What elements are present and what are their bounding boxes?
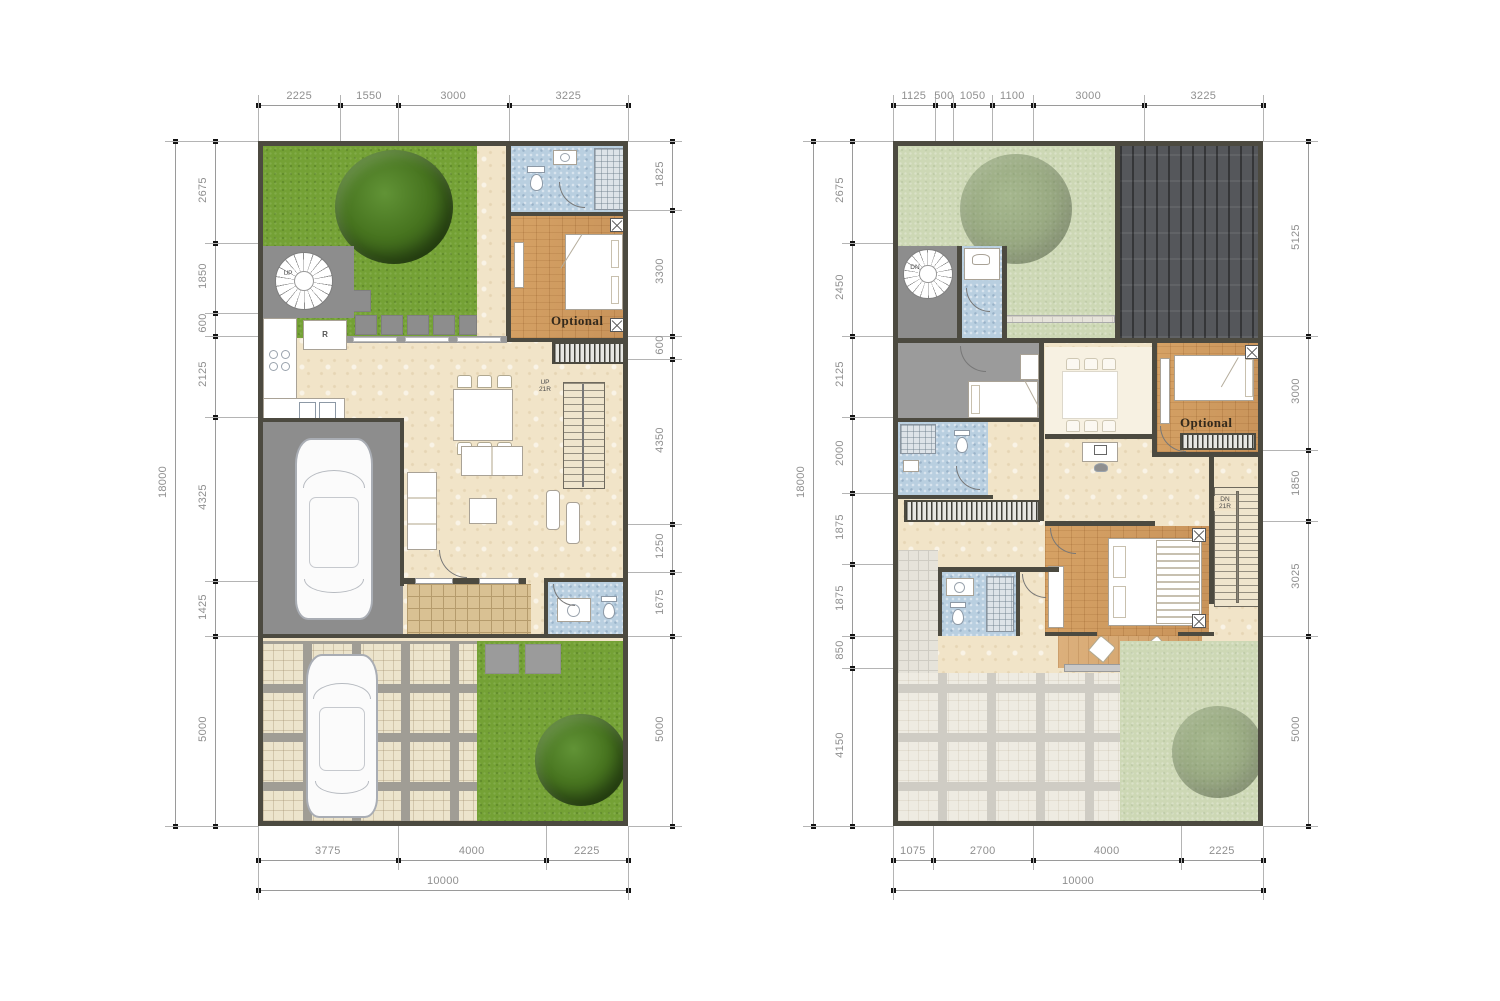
dim-witness-line [1263,826,1318,827]
dim-witness-line [205,336,258,337]
kitchen-sink [299,402,316,419]
stepping-stone [355,315,377,335]
dim-tick [670,570,675,575]
optional-room-label: Optional [551,313,603,329]
dim-tick [670,334,675,339]
dim-witness-line [842,243,893,244]
window [415,578,453,584]
desk-monitor [1094,445,1107,455]
dim-witness-line [628,826,629,900]
stair-label: DN 21R [1214,496,1236,511]
dim-tick [626,888,631,893]
dim-witness-line [205,636,258,637]
wall [510,338,623,342]
dim-witness-line [628,336,682,337]
dim-tick [891,888,896,893]
dining-chair [457,375,472,388]
bed-pillow [1113,586,1126,618]
dim-label: 600 [197,293,209,353]
dim-label: 2675 [197,160,209,220]
dim-witness-line [628,826,629,870]
dim-tick [850,139,855,144]
wall [898,495,993,499]
shower-b [900,424,936,454]
ac-unit [1245,345,1258,359]
dim-tick [670,139,675,144]
spiral-staircase [275,252,333,310]
dim-witness-line [842,668,893,669]
dim-witness-line [628,210,682,211]
sofa [407,472,437,550]
dim-witness-line [340,95,341,141]
dim-label: 1675 [654,572,666,632]
dim-witness-line [803,141,893,142]
dim-witness-line [842,564,893,565]
dim-label: 3775 [298,845,358,857]
dining-chair-below [1084,420,1098,432]
dim-witness-line [893,826,894,870]
car-windshield [313,683,370,699]
toilet-tank [527,166,545,173]
stepping-stone [407,315,429,335]
dim-witness-line [398,95,399,141]
toilet [956,437,968,453]
dim-label: 1875 [834,497,846,557]
dim-witness-line [165,141,258,142]
refrigerator-label: R [322,330,328,339]
dim-tick [990,103,995,108]
wall [1115,146,1120,338]
dim-witness-line [628,572,682,573]
dim-tick [507,103,512,108]
step-pad [525,644,561,674]
dim-tick [811,824,816,829]
dim-label: 1100 [982,90,1042,102]
stepping-stone [381,315,403,335]
dim-label: 5000 [654,699,666,759]
bed-pillow [971,385,980,414]
dim-witness-line [933,826,934,870]
car-rear-window [304,579,363,593]
staircase-up [563,382,605,489]
tv-console [546,490,560,530]
dim-witness-line [205,141,258,142]
dim-line [1308,141,1309,826]
dim-label: 4000 [1077,845,1137,857]
dim-label: 3025 [1290,546,1302,606]
wall [1152,343,1157,457]
stepping-stone [459,315,477,335]
wall [544,578,623,582]
wall [938,567,942,636]
wall [1039,343,1044,521]
dim-witness-line [1263,336,1318,337]
toilet-tank [950,602,966,608]
dim-witness-line [628,95,629,141]
dim-label: 3300 [654,241,666,301]
dim-label: 10000 [1048,875,1108,887]
dim-label: 4150 [834,715,846,775]
dining-table-below [1062,371,1118,419]
dim-witness-line [953,95,954,141]
dim-tick [1306,824,1311,829]
planter-ledge [1001,315,1115,323]
dim-tick [338,103,343,108]
dim-tick [396,103,401,108]
dim-tick [891,103,896,108]
ac-ledge [552,342,623,364]
staircase-rail [582,384,584,487]
door-panel [457,337,501,342]
ac-unit [1192,614,1206,628]
dim-witness-line [628,524,682,525]
dim-tick [1306,634,1311,639]
door-panel [405,337,449,342]
side-terrace [898,550,938,673]
dim-tick [626,103,631,108]
dim-label: 3000 [1058,90,1118,102]
dim-tick [951,103,956,108]
dim-tick [1306,334,1311,339]
wall [957,246,962,338]
wardrobe [1020,354,1039,380]
dim-tick [850,334,855,339]
dim-label: 4350 [654,410,666,470]
dim-witness-line [842,417,893,418]
dim-witness-line [1263,450,1318,451]
dim-witness-line [842,826,893,827]
dim-tick [213,139,218,144]
dim-tick [850,634,855,639]
dim-label: 2700 [953,845,1013,857]
dim-witness-line [165,826,258,827]
stair-risers: 21R [539,386,551,393]
dim-line [258,890,628,891]
basin [972,254,990,265]
dim-label: 3000 [1290,361,1302,421]
wall [1045,434,1157,439]
dim-tick [1179,858,1184,863]
dim-witness-line [205,826,258,827]
dim-label: 2225 [557,845,617,857]
dim-tick [256,858,261,863]
dim-witness-line [1263,826,1264,900]
dining-chair-below [1066,420,1080,432]
optional-room-label: Optional [1180,415,1232,431]
dim-line [813,141,814,826]
bed-pillow [611,276,619,304]
second-floor-rooms: DN [898,146,1258,821]
dim-tick [1261,103,1266,108]
dim-tick [931,858,936,863]
toilet [603,603,615,619]
dim-label: 3000 [423,90,483,102]
sink-basin [560,153,570,162]
dim-tick [850,415,855,420]
dim-label: 1125 [884,90,944,102]
dim-tick [850,824,855,829]
dim-tick [850,241,855,246]
dim-witness-line [842,336,893,337]
dim-label: 1550 [339,90,399,102]
dim-witness-line [628,636,682,637]
dim-label: 18000 [795,452,807,512]
closet-panels [1160,358,1170,424]
ground-floor-rooms: UP R [263,146,623,821]
toilet-tank [601,596,617,602]
wall [544,578,548,636]
toilet [952,609,964,625]
wall [400,418,404,586]
dim-line [672,141,673,826]
dim-witness-line [935,95,936,141]
dim-witness-line [893,826,894,900]
dim-label: 1825 [654,144,666,204]
dim-tick [1031,858,1036,863]
floor-plan-sheet: UP R [0,0,1500,1001]
stair-risers: 21R [1219,503,1231,510]
spiral-direction-label: DN [908,264,922,271]
dim-witness-line [546,826,547,870]
dim-witness-line [1263,826,1264,870]
car-driveway [306,654,378,818]
basin [903,460,919,472]
spiral-direction-label: UP [281,270,295,277]
dim-line [258,860,628,861]
dim-witness-line [1263,521,1318,522]
dim-label: 1250 [654,516,666,576]
window [479,578,519,584]
dim-line [893,105,1263,106]
wall [1045,521,1155,526]
kitchen-sink [319,402,336,419]
loveseat [461,446,523,476]
wall [506,146,511,342]
dim-tick [213,634,218,639]
dim-tick [1306,519,1311,524]
dim-label: 600 [654,315,666,375]
dim-label: 3225 [1173,90,1233,102]
dim-witness-line [1263,141,1318,142]
dim-witness-line [893,95,894,141]
wall [1002,246,1007,338]
dim-label: 2225 [269,90,329,102]
dim-tick [626,858,631,863]
dim-witness-line [628,359,682,360]
dim-tick [213,241,218,246]
dim-tick [173,139,178,144]
car-rear-window [315,781,369,794]
dim-tick [256,103,261,108]
dim-label: 5125 [1290,207,1302,267]
dim-tick [544,858,549,863]
dim-witness-line [205,417,258,418]
dim-tick [670,634,675,639]
sliding-glass-door [347,336,507,343]
bush-below [1172,706,1258,798]
dim-witness-line [509,95,510,141]
ac-unit [610,218,623,232]
dim-witness-line [803,826,893,827]
dim-tick [891,858,896,863]
stove-burner [281,350,290,359]
dim-label: 2125 [834,344,846,404]
dim-witness-line [628,141,682,142]
dining-chair-below [1066,358,1080,370]
shower-c [986,576,1014,632]
dim-tick [670,522,675,527]
wall [263,418,404,422]
dim-label: 2125 [197,344,209,404]
wall [938,567,1059,572]
dim-label: 500 [914,90,974,102]
dim-tick [213,824,218,829]
refrigerator: R [303,320,347,350]
dim-tick [670,357,675,362]
bed-pillow [1113,546,1126,578]
dim-label: 10000 [413,875,473,887]
dim-line [215,141,216,826]
wall [1157,452,1258,457]
wall [510,212,623,216]
dim-label: 4000 [442,845,502,857]
dim-label: 850 [834,620,846,680]
dim-label: 18000 [157,452,169,512]
toilet-tank [954,430,970,436]
dim-witness-line [842,493,893,494]
stove-burner [269,350,278,359]
dim-witness-line [258,95,259,141]
dim-tick [811,139,816,144]
dim-witness-line [628,826,682,827]
stair-direction: UP [540,379,549,386]
spiral-staircase [903,249,953,299]
dim-witness-line [258,826,259,870]
driveway-below [898,673,1120,821]
tv-console [566,502,580,544]
dim-label: 1875 [834,568,846,628]
stepping-stone [433,315,455,335]
shower-1 [594,148,623,210]
dim-line [893,860,1263,861]
dim-tick [850,666,855,671]
dining-table [453,389,513,441]
dim-line [852,141,853,826]
dim-label: 1075 [883,845,943,857]
dim-label: 3225 [538,90,598,102]
stair-label: UP 21R [533,379,557,394]
dim-line [258,105,628,106]
dim-tick [1306,448,1311,453]
dim-tick [670,208,675,213]
stove-burner [281,362,290,371]
stair-direction: DN [1220,496,1229,503]
porch [407,584,531,636]
dresser [1048,566,1064,628]
dim-witness-line [1033,95,1034,141]
dim-witness-line [992,95,993,141]
car-roof [319,707,365,771]
dim-witness-line [1144,95,1145,141]
dim-witness-line [1263,95,1264,141]
dim-tick [213,415,218,420]
dim-label: 1850 [197,246,209,306]
sink-basin [954,582,965,593]
dim-tick [670,824,675,829]
coffee-table [469,498,497,524]
dim-line [175,141,176,826]
door-panel [353,337,397,342]
dim-tick [1306,139,1311,144]
dim-tick [1261,858,1266,863]
bed-blanket [1156,540,1200,624]
bed-pillow [611,240,619,268]
dim-witness-line [1033,826,1034,870]
dim-witness-line [258,826,259,900]
dim-label: 1425 [197,577,209,637]
dim-tick [213,579,218,584]
roof-carport [1120,146,1258,338]
dim-witness-line [1263,636,1318,637]
step-pad [485,644,519,674]
closet-panels [514,242,524,288]
second-floor-plan: DN [893,141,1263,826]
dim-tick [173,824,178,829]
wall [1016,567,1020,636]
garden-bush [535,714,623,806]
dim-label: 2225 [1192,845,1252,857]
wall [263,634,623,638]
dining-chair-below [1102,420,1116,432]
dim-label: 2675 [834,160,846,220]
dining-chair-below [1102,358,1116,370]
dim-tick [213,334,218,339]
wardrobe-run [904,500,1040,522]
dining-chair [477,375,492,388]
dim-tick [1261,888,1266,893]
dim-witness-line [205,313,258,314]
dim-tick [850,491,855,496]
toilet [530,174,543,191]
dim-tick [213,311,218,316]
dim-tick [850,562,855,567]
dim-label: 5000 [1290,699,1302,759]
spiral-hub [294,271,314,291]
desk-chair [1094,463,1108,472]
dim-label: 1850 [1290,453,1302,513]
wardrobe-run [1180,433,1256,450]
dim-witness-line [1181,826,1182,870]
staircase-rail [1236,491,1239,603]
dim-witness-line [842,636,893,637]
dining-chair-below [1084,358,1098,370]
dim-tick [396,858,401,863]
dim-tick [1031,103,1036,108]
dim-label: 4325 [197,467,209,527]
dim-label: 2000 [834,423,846,483]
car-garage [295,438,373,620]
ac-unit [1192,528,1206,542]
dim-witness-line [842,141,893,142]
dim-label: 5000 [197,699,209,759]
car-roof [309,497,359,568]
dim-tick [1142,103,1147,108]
stove-burner [269,362,278,371]
dim-witness-line [398,826,399,870]
dim-line [893,890,1263,891]
ground-floor-plan: UP R [258,141,628,826]
dim-label: 1050 [943,90,1003,102]
